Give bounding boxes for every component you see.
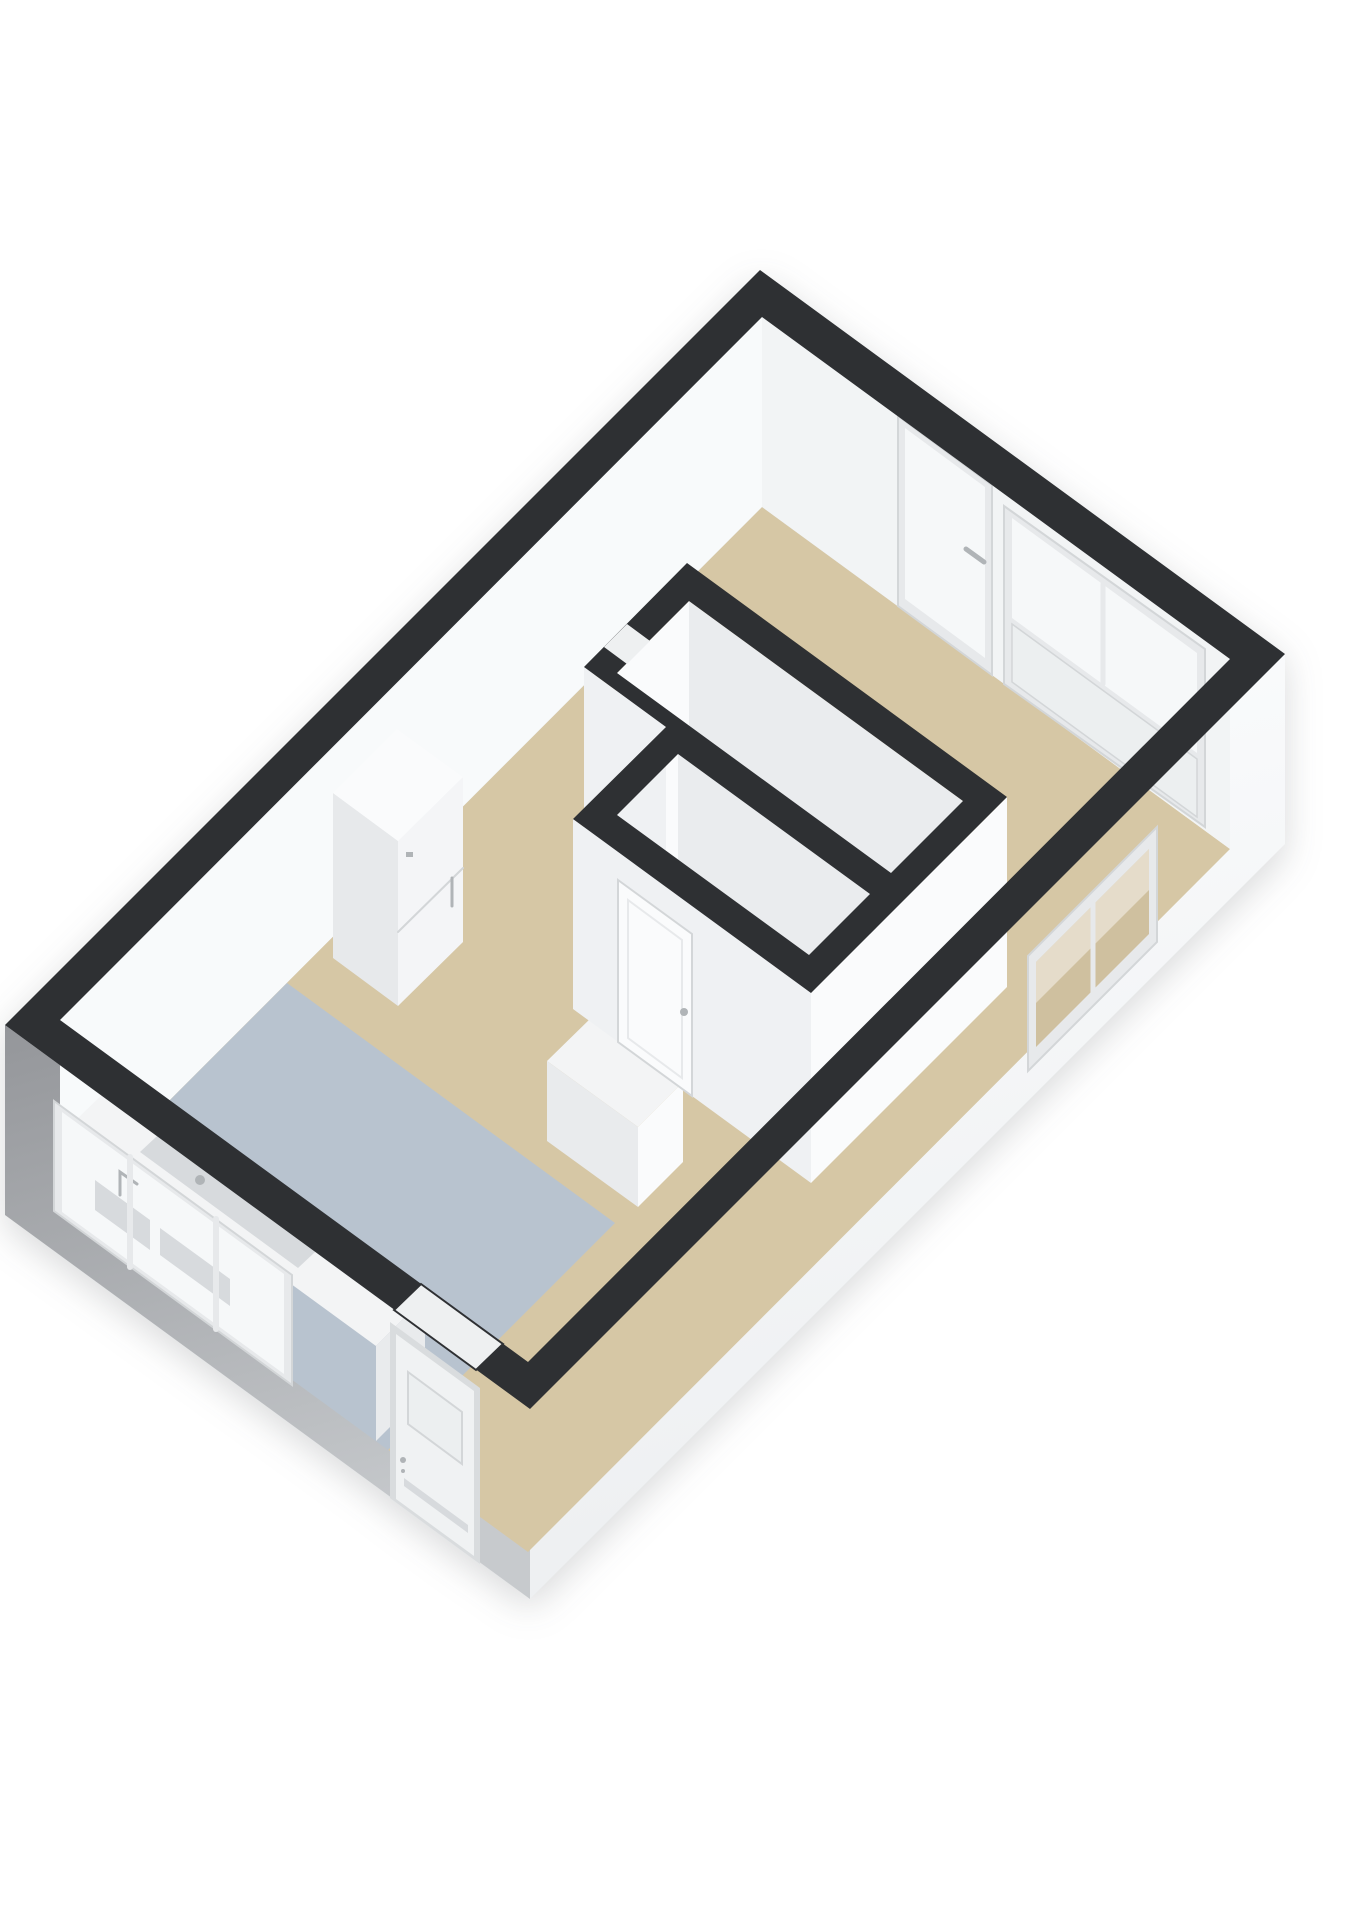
floorplan-3d-svg bbox=[0, 0, 1358, 1920]
entry-door-lock bbox=[400, 1457, 406, 1463]
tall-cabinet-logo bbox=[406, 852, 413, 857]
toilet-door-handle bbox=[680, 1008, 688, 1016]
entry-door-keyhole bbox=[401, 1469, 405, 1473]
building bbox=[5, 270, 1285, 1599]
kitchen-faucet bbox=[195, 1175, 205, 1185]
floorplan-canvas bbox=[0, 0, 1358, 1920]
